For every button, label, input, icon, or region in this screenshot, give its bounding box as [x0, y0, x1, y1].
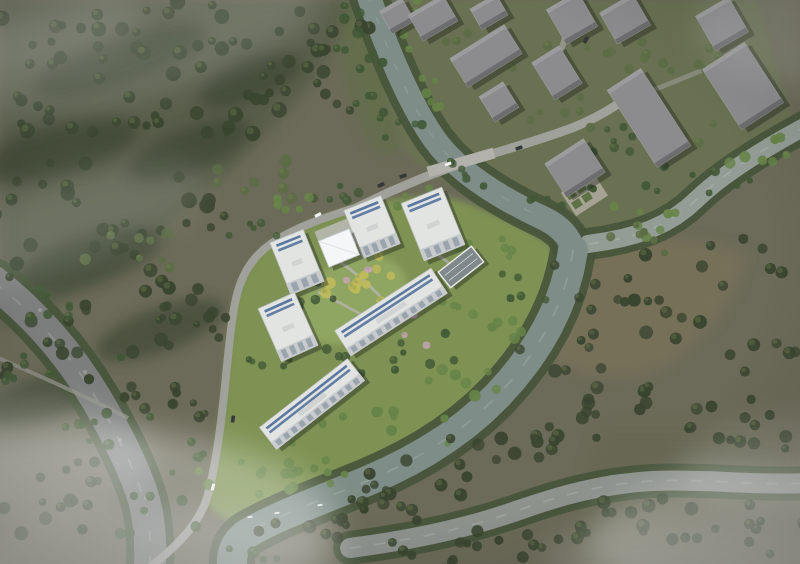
- aerial-render: Aerial bird's-eye architectural renderin…: [0, 0, 800, 564]
- aerial-scene-svg: [0, 0, 800, 564]
- vignette-overlay: [0, 0, 800, 564]
